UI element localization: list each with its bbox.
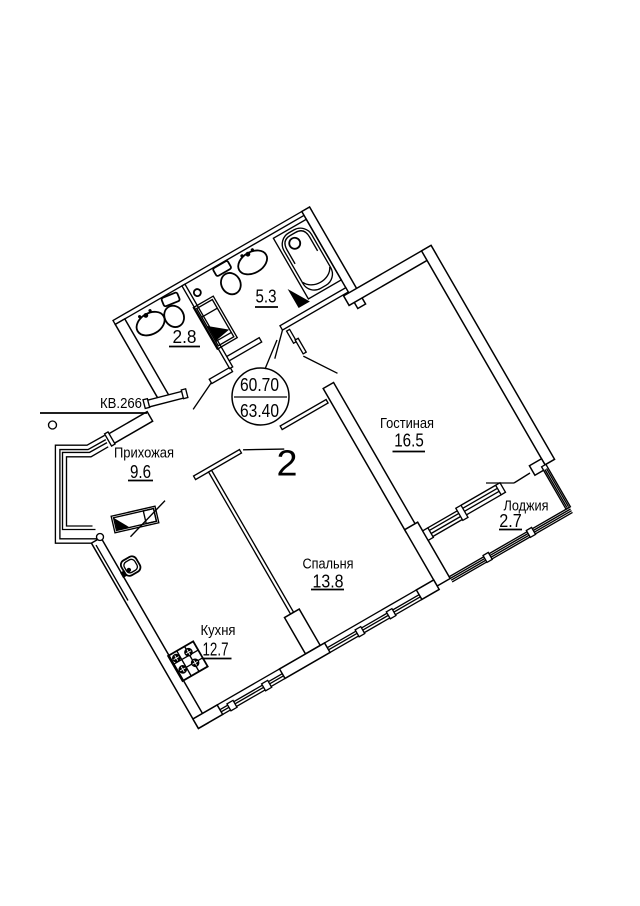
svg-text:63.40: 63.40 — [240, 400, 279, 421]
svg-text:Кухня: Кухня — [201, 622, 236, 639]
svg-text:12.7: 12.7 — [203, 639, 229, 660]
svg-text:5.3: 5.3 — [256, 286, 277, 307]
svg-text:КВ.266: КВ.266 — [100, 395, 142, 412]
svg-text:9.6: 9.6 — [130, 461, 151, 482]
svg-text:Прихожая: Прихожая — [114, 445, 174, 462]
svg-text:2.7: 2.7 — [499, 510, 522, 531]
svg-text:2: 2 — [277, 443, 298, 484]
svg-text:60.70: 60.70 — [240, 374, 279, 395]
svg-text:13.8: 13.8 — [313, 571, 344, 592]
svg-text:16.5: 16.5 — [394, 430, 424, 451]
svg-text:2.8: 2.8 — [173, 326, 197, 347]
